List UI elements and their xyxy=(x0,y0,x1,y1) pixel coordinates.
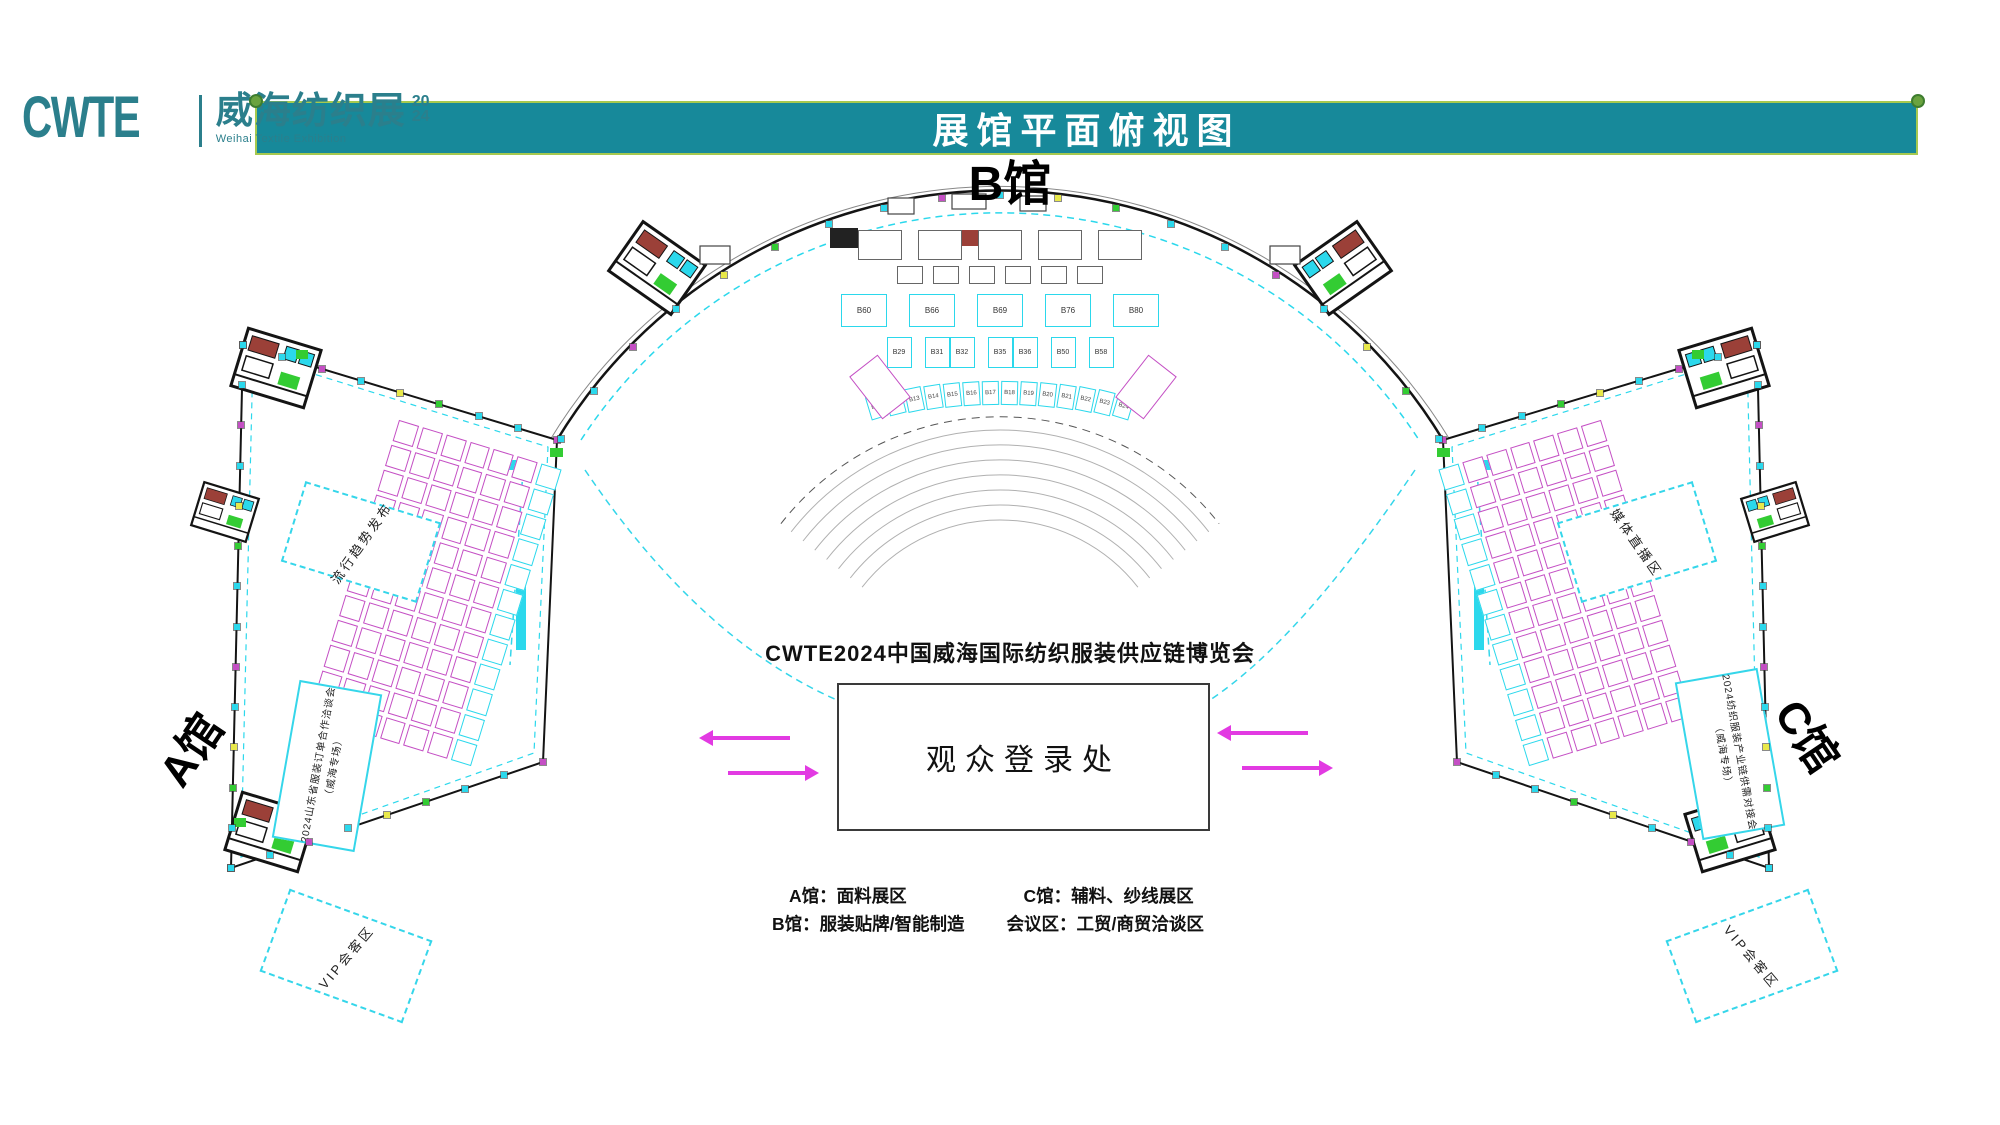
b-hall-top-booth-row xyxy=(0,230,2000,260)
booth-cell xyxy=(1508,606,1534,633)
b-hall-booth-row-1: B60B66B69B76B80 xyxy=(0,294,2000,327)
edge-tick xyxy=(1763,744,1769,750)
edge-tick xyxy=(240,342,246,348)
edge-tick xyxy=(235,543,241,549)
booth-b: B80 xyxy=(1113,294,1159,327)
booth-cell xyxy=(1611,602,1637,629)
logo-text-block: 威海纺织展 20 24 Weihai Textile Exhibition xyxy=(216,92,430,145)
edge-tick xyxy=(591,388,597,394)
booth-b: B35 xyxy=(988,337,1013,368)
booth xyxy=(1098,230,1142,260)
edge-tick xyxy=(319,366,325,372)
edge-tick xyxy=(1688,839,1694,845)
booth-cell xyxy=(1610,685,1636,712)
booth-b: B32 xyxy=(950,337,975,368)
booth-cell xyxy=(481,556,507,583)
edge-tick xyxy=(1760,624,1766,630)
edge-tick xyxy=(1761,664,1767,670)
edge-tick xyxy=(397,390,403,396)
booth-cell xyxy=(504,481,530,508)
logo-year: 20 24 xyxy=(412,94,430,124)
booth-group: B35B36 xyxy=(988,337,1038,368)
booth-cell xyxy=(1548,567,1574,594)
edge-tick xyxy=(1757,463,1763,469)
edge-tick xyxy=(229,825,235,831)
booth-cell xyxy=(1562,699,1588,726)
booth-cell xyxy=(464,442,490,469)
booth-b: B29 xyxy=(887,337,912,368)
logo-acronym: CWTE xyxy=(22,92,139,143)
edge-tick xyxy=(772,244,778,250)
booth-cell xyxy=(387,610,413,637)
edge-tick xyxy=(231,744,237,750)
booth-cell xyxy=(411,699,437,726)
booth-cell xyxy=(441,517,467,544)
booth-b: B76 xyxy=(1045,294,1091,327)
edge-tick xyxy=(515,425,521,431)
booth-cell xyxy=(1470,481,1496,508)
booth-cell xyxy=(1557,427,1583,454)
legend-c: C馆：辅料、纱线展区 xyxy=(1007,882,1204,910)
edge-tick xyxy=(1649,825,1655,831)
booth-cell xyxy=(1634,677,1660,704)
booth-cell xyxy=(331,620,357,647)
booth-cell xyxy=(465,524,491,551)
booth-group: B29 xyxy=(887,337,912,368)
edge-tick xyxy=(236,503,242,509)
booth-b: B14 xyxy=(923,384,944,410)
visitor-registration-label: 观众登录处 xyxy=(926,735,1121,779)
booth-cell xyxy=(339,595,365,622)
booth xyxy=(978,230,1022,260)
edge-tick xyxy=(1755,382,1761,388)
edge-tick xyxy=(345,825,351,831)
edge-tick xyxy=(501,772,507,778)
cwte-logo: CWTE 威海纺织展 20 24 Weihai Textile Exhibiti… xyxy=(22,92,430,147)
booth-cell xyxy=(1493,556,1519,583)
booth-cell xyxy=(395,667,421,694)
booth-cell xyxy=(432,459,458,486)
edge-tick xyxy=(721,272,727,278)
edge-tick xyxy=(1113,205,1119,211)
edge-tick xyxy=(476,413,482,419)
legend-b: B馆：服装贴牌/智能制造 xyxy=(772,910,965,938)
booth xyxy=(897,266,923,284)
booth-cell xyxy=(1531,681,1557,708)
booth-cell xyxy=(1547,649,1573,676)
booth xyxy=(1041,266,1067,284)
edge-tick xyxy=(1558,401,1564,407)
booth-cell xyxy=(379,635,405,662)
edge-tick xyxy=(1760,583,1766,589)
booth-b: B66 xyxy=(909,294,955,327)
edge-tick xyxy=(384,812,390,818)
booth-cell xyxy=(472,499,498,526)
booth-cell xyxy=(324,645,350,672)
edge-tick xyxy=(1454,759,1460,765)
edge-tick xyxy=(306,839,312,845)
booth-cell xyxy=(1517,549,1543,576)
booth-b: B69 xyxy=(977,294,1023,327)
booth-cell xyxy=(457,549,483,576)
booth-cell xyxy=(387,692,413,719)
edge-tick xyxy=(1762,704,1768,710)
booth-cell xyxy=(1555,674,1581,701)
edge-tick xyxy=(540,759,546,765)
booth-cell xyxy=(1525,492,1551,519)
booth-cell xyxy=(1539,624,1565,651)
booth-b: B60 xyxy=(841,294,887,327)
edge-tick xyxy=(1519,413,1525,419)
service-desks xyxy=(506,460,1494,650)
booth-cell xyxy=(488,449,514,476)
visitor-registration-box: 观众登录处 xyxy=(837,683,1210,831)
booth-cell xyxy=(1563,617,1589,644)
booth-cell xyxy=(1510,442,1536,469)
booth-group: B58 xyxy=(1089,337,1114,368)
booth-cell xyxy=(450,656,476,683)
booth-cell xyxy=(426,649,452,676)
booth-cell xyxy=(1618,627,1644,654)
banner-curl-right xyxy=(1911,94,1925,108)
edge-tick xyxy=(1222,244,1228,250)
edge-tick xyxy=(1766,865,1772,871)
logo-subtitle-en: Weihai Textile Exhibition xyxy=(216,133,430,145)
edge-tick xyxy=(423,799,429,805)
edge-tick xyxy=(1636,378,1642,384)
booth xyxy=(1038,230,1082,260)
booth-cell xyxy=(363,602,389,629)
booth-b: B31 xyxy=(925,337,950,368)
edge-tick xyxy=(1321,306,1327,312)
edge-tick xyxy=(237,463,243,469)
edge-tick xyxy=(238,422,244,428)
edge-tick xyxy=(1727,852,1733,858)
booth-b: B18 xyxy=(1001,381,1019,405)
booth-cell xyxy=(511,456,537,483)
booth-cell xyxy=(1485,531,1511,558)
booth-cell xyxy=(1524,574,1550,601)
booth-cell xyxy=(371,660,397,687)
booth-cell xyxy=(1486,449,1512,476)
booth-cell xyxy=(1595,635,1621,662)
booth-cell xyxy=(442,599,468,626)
booth-cell xyxy=(1573,477,1599,504)
booth-b: B58 xyxy=(1089,337,1114,368)
edge-tick xyxy=(1756,422,1762,428)
edge-tick xyxy=(228,865,234,871)
banner-curl-left xyxy=(249,94,263,108)
edge-tick xyxy=(630,344,636,350)
edge-tick xyxy=(234,624,240,630)
booth-cell xyxy=(473,581,499,608)
booth-cell xyxy=(355,627,381,654)
flow-arrow-left-out xyxy=(712,736,790,740)
booth xyxy=(858,230,902,260)
booth-cell xyxy=(1509,524,1535,551)
booth-cell xyxy=(418,592,444,619)
edge-tick xyxy=(1610,812,1616,818)
booth-cell xyxy=(385,445,411,472)
booth-b: B20 xyxy=(1038,382,1058,408)
edge-tick xyxy=(230,785,236,791)
edge-tick xyxy=(267,852,273,858)
booth-cell xyxy=(1565,452,1591,479)
booth xyxy=(918,230,962,260)
flow-arrow-left-in xyxy=(728,771,806,775)
booth-cell xyxy=(1494,474,1520,501)
booth-cell xyxy=(1556,592,1582,619)
edge-tick xyxy=(462,786,468,792)
booth-cell xyxy=(1516,631,1542,658)
edge-tick xyxy=(1168,221,1174,227)
booth-b: B19 xyxy=(1019,381,1038,406)
booth-cell xyxy=(1532,599,1558,626)
edge-tick xyxy=(1676,366,1682,372)
edge-tick xyxy=(1364,344,1370,350)
edge-tick xyxy=(1597,390,1603,396)
edge-tick xyxy=(1436,436,1442,442)
booth-cell xyxy=(458,631,484,658)
booth-cell xyxy=(480,474,506,501)
edge-tick xyxy=(558,436,564,442)
edge-tick xyxy=(232,704,238,710)
edge-tick xyxy=(1571,799,1577,805)
flow-arrow-right-out xyxy=(1242,766,1320,770)
booth-cell xyxy=(1571,642,1597,669)
edge-tick xyxy=(1754,342,1760,348)
edge-tick xyxy=(1759,543,1765,549)
booth-group: B31B32 xyxy=(925,337,975,368)
booth-cell xyxy=(1540,542,1566,569)
booth-cell xyxy=(1500,581,1526,608)
booth-cell xyxy=(1602,660,1628,687)
edge-tick xyxy=(1479,425,1485,431)
edge-tick xyxy=(234,583,240,589)
booth-cell xyxy=(1541,459,1567,486)
booth-cell xyxy=(425,484,451,511)
booth xyxy=(933,266,959,284)
edge-tick xyxy=(1765,825,1771,831)
booth-cell xyxy=(449,574,475,601)
booth-cell xyxy=(1533,434,1559,461)
edge-tick xyxy=(1493,772,1499,778)
booth-cell xyxy=(1523,656,1549,683)
edge-tick xyxy=(673,306,679,312)
booth xyxy=(1077,266,1103,284)
booth-cell xyxy=(426,567,452,594)
legend: A馆：面料展区 B馆：服装贴牌/智能制造 C馆：辅料、纱线展区 会议区：工贸/商… xyxy=(772,882,1204,938)
booth-cell xyxy=(1586,692,1612,719)
booth xyxy=(969,266,995,284)
booth-cell xyxy=(496,506,522,533)
booth-b: B50 xyxy=(1051,337,1076,368)
booth-cell xyxy=(1501,499,1527,526)
booth-cell xyxy=(1533,517,1559,544)
b-hall-arc-booth-row: B11B12B13B14B15B16B17B18B19B20B21B22B23B… xyxy=(0,381,2000,405)
b-hall-booth-row-2: B29B31B32B35B36B50B58 xyxy=(0,337,2000,368)
booth-cell xyxy=(1626,652,1652,679)
booth-b: B16 xyxy=(962,381,981,406)
booth-cell xyxy=(1517,467,1543,494)
edge-tick xyxy=(1403,388,1409,394)
booth-cell xyxy=(1579,667,1605,694)
booth-cell xyxy=(466,606,492,633)
edge-tick xyxy=(239,382,245,388)
booth-cell xyxy=(393,420,419,447)
booth-cell xyxy=(456,467,482,494)
booth xyxy=(1005,266,1031,284)
edge-tick xyxy=(358,378,364,384)
b-hall-small-booth-row xyxy=(0,266,2000,284)
booth-cell xyxy=(1549,484,1575,511)
legend-a: A馆：面料展区 xyxy=(772,882,965,910)
booth-cell xyxy=(410,617,436,644)
edge-tick xyxy=(1758,503,1764,509)
booth-cell xyxy=(1539,706,1565,733)
logo-title-cn: 威海纺织展 xyxy=(216,92,406,129)
hall-label-b: B馆 xyxy=(928,144,1092,214)
booth-cell xyxy=(449,492,475,519)
booth-cell xyxy=(347,652,373,679)
logo-divider xyxy=(199,95,202,147)
expo-title: CWTE2024中国威海国际纺织服装供应链博览会 xyxy=(660,636,1360,668)
booth-cell xyxy=(433,542,459,569)
booth-cell xyxy=(443,681,469,708)
booth-cell xyxy=(434,624,460,651)
booth-b: B15 xyxy=(943,382,963,408)
booth-cell xyxy=(377,470,403,497)
edge-tick xyxy=(1764,785,1770,791)
booth-cell xyxy=(416,427,442,454)
booth-cell xyxy=(440,434,466,461)
booth-cell xyxy=(409,452,435,479)
booth-cell xyxy=(401,477,427,504)
booth-cell xyxy=(1462,456,1488,483)
legend-column-right: C馆：辅料、纱线展区 会议区：工贸/商贸洽谈区 xyxy=(1007,882,1204,938)
edge-tick xyxy=(279,354,285,360)
edge-tick xyxy=(436,401,442,407)
booth-b: B36 xyxy=(1013,337,1038,368)
booth-cell xyxy=(488,531,514,558)
flow-arrow-right-in xyxy=(1230,731,1308,735)
booth-cell xyxy=(1587,610,1613,637)
booth-cell xyxy=(403,642,429,669)
legend-meeting: 会议区：工贸/商贸洽谈区 xyxy=(1007,910,1204,938)
legend-column-left: A馆：面料展区 B馆：服装贴牌/智能制造 xyxy=(772,882,965,938)
edge-tick xyxy=(1715,354,1721,360)
booth-cell xyxy=(435,706,461,733)
booth-cell xyxy=(1477,506,1503,533)
edge-tick xyxy=(1273,272,1279,278)
edge-tick xyxy=(1532,786,1538,792)
edge-tick xyxy=(233,664,239,670)
runway-seating-fan xyxy=(781,417,1219,587)
edge-tick xyxy=(826,221,832,227)
booth-b: B17 xyxy=(982,381,1000,405)
booth-group: B50 xyxy=(1051,337,1076,368)
booth-cell xyxy=(419,674,445,701)
edge-tick xyxy=(881,205,887,211)
